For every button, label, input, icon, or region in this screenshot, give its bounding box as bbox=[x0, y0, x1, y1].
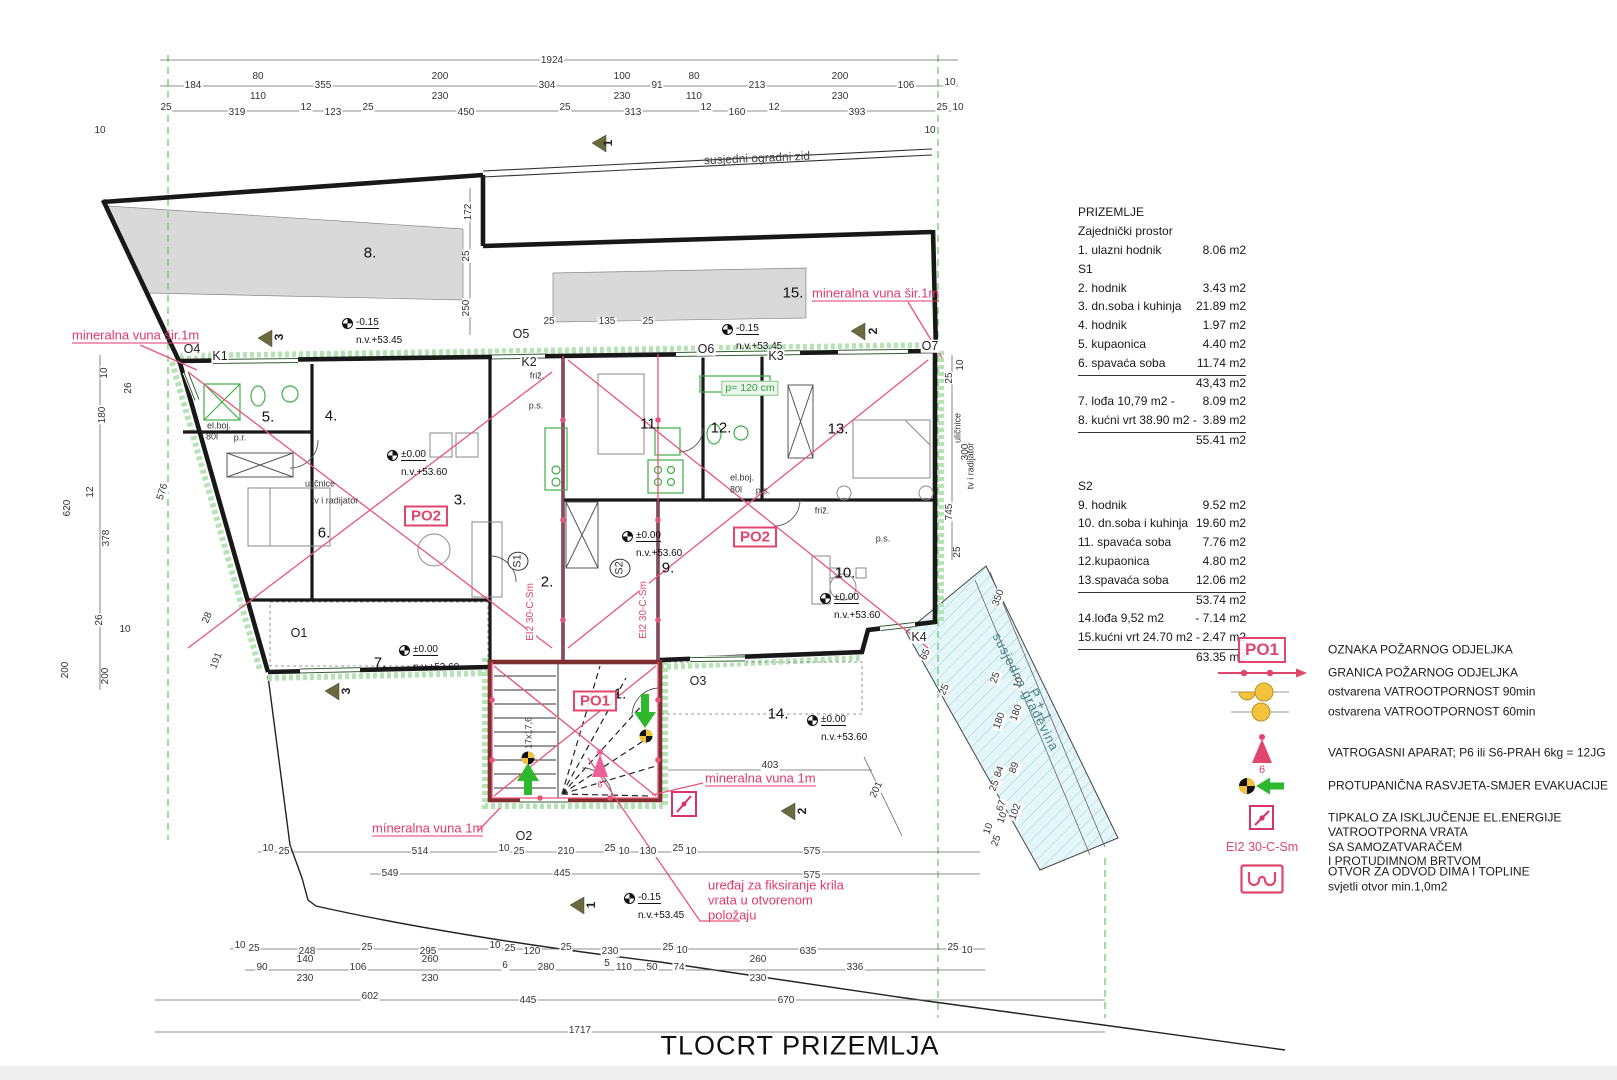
legend-label: ostvarena VATROOTPORNOST 90min bbox=[1328, 685, 1535, 700]
dimension-label: 12 bbox=[767, 103, 780, 113]
legend-label: PROTUPANIČNA RASVJETA-SMJER EVAKUACIJE bbox=[1328, 779, 1608, 794]
legend-symbol bbox=[1231, 681, 1293, 703]
dimension-label: 230 bbox=[601, 947, 620, 957]
level-marker-icon bbox=[820, 593, 831, 604]
fire-compartment-badge: PO1 bbox=[573, 691, 617, 712]
dimension-label: 450 bbox=[457, 108, 476, 118]
room-number: 5. bbox=[262, 410, 275, 425]
room-number: 4. bbox=[325, 409, 338, 424]
dimension-label: 25 bbox=[935, 103, 948, 113]
level-marker: -0.15n.v.+53.45 bbox=[722, 318, 782, 354]
po1-symbol: PO1 bbox=[1238, 637, 1286, 663]
area-row-label: 7. lođa 10,79 m2 - bbox=[1078, 394, 1175, 408]
site-terrain-line bbox=[268, 676, 1285, 1050]
dimension-label: 106 bbox=[349, 963, 368, 973]
dimension-label: 26 bbox=[95, 613, 105, 626]
dimension-label: 635 bbox=[799, 947, 818, 957]
power-cutoff-switch-symbol bbox=[672, 792, 696, 816]
dimension-label: 10 bbox=[951, 103, 964, 113]
dimension-label: 25 bbox=[159, 103, 172, 113]
room-number: 8. bbox=[364, 246, 377, 261]
dimension-label: 575 bbox=[803, 847, 822, 857]
dimension-label: 26 bbox=[124, 381, 134, 394]
dimension-label: 160 bbox=[728, 108, 747, 118]
dimension-label: 110 bbox=[249, 92, 267, 102]
legend-symbol: EI2 30-C-Sm bbox=[1226, 840, 1298, 854]
fixture-label: 80l bbox=[730, 486, 742, 495]
legend-label: GRANICA POŽARNOG ODJELJKA bbox=[1328, 666, 1518, 681]
level-marker-icon bbox=[624, 893, 635, 904]
level-marker-icon bbox=[399, 645, 410, 656]
floor-plan-sheet: 1924184801103552002303041002309180110213… bbox=[0, 0, 1617, 1080]
legend-symbol bbox=[1231, 701, 1293, 723]
area-row-label: 10. dn.soba i kuhinja bbox=[1078, 516, 1188, 530]
level-datum: n.v.+53.45 bbox=[736, 341, 782, 352]
opening-label: K1 bbox=[211, 350, 228, 363]
level-datum: n.v.+53.60 bbox=[636, 548, 682, 559]
section-mark-number: 2 bbox=[867, 328, 879, 335]
dimension-label: 80 bbox=[687, 72, 700, 82]
section-mark-number: 1 bbox=[602, 140, 614, 147]
fire-resistance-60-icon bbox=[1231, 701, 1293, 723]
room-number: 3. bbox=[454, 493, 467, 508]
level-marker: -0.15n.v.+53.45 bbox=[342, 312, 402, 348]
dimension-label: 12 bbox=[699, 103, 712, 113]
fire-resistance-90-icon bbox=[1231, 681, 1293, 703]
dimension-label: 106 bbox=[897, 81, 916, 91]
dimension-label: 184 bbox=[184, 81, 203, 91]
opening-label: K4 bbox=[910, 631, 927, 644]
legend-symbol: 6 bbox=[1247, 732, 1277, 774]
dimension-label: 10 bbox=[93, 126, 106, 136]
fire-note: uređaj za fiksiranje krila bbox=[708, 879, 844, 892]
evacuation-direction-icon bbox=[1234, 775, 1290, 797]
level-marker-icon bbox=[622, 531, 633, 542]
page-title: TLOCRT PRIZEMLJA bbox=[660, 1031, 939, 1062]
dimension-label: 445 bbox=[553, 869, 572, 879]
section-mark-number: 2 bbox=[796, 808, 808, 815]
dimension-label: 120 bbox=[523, 947, 542, 957]
opening-label: O5 bbox=[512, 328, 531, 341]
garden-gray-areas bbox=[108, 206, 806, 322]
legend-symbol bbox=[1248, 804, 1276, 832]
dimension-label: 110 bbox=[615, 963, 633, 973]
section-mark-number: 1 bbox=[585, 902, 597, 909]
area-row-label: 15.kućni vrt 24.70 m2 - bbox=[1078, 630, 1200, 644]
area-row-label: 4. hodnik bbox=[1078, 318, 1127, 332]
dimension-label: 393 bbox=[848, 108, 867, 118]
fire-note: mineralna vuna šir.1m bbox=[812, 287, 939, 302]
level-marker: ±0.00n.v.+53.60 bbox=[622, 525, 682, 561]
dimension-label: 378 bbox=[102, 529, 112, 548]
room-number: 7. bbox=[374, 656, 387, 671]
fixture-label: tv i radijator bbox=[967, 443, 976, 490]
apartment-tag: S2 bbox=[610, 558, 631, 577]
dimension-label: 180 bbox=[98, 406, 108, 425]
level-datum: n.v.+53.60 bbox=[413, 662, 459, 673]
level-value: -0.15 bbox=[736, 323, 759, 335]
dimension-label: 172 bbox=[464, 203, 474, 222]
bottom-strip bbox=[0, 1066, 1617, 1080]
boundary-symbol-icon bbox=[1216, 666, 1308, 680]
opening-label: O6 bbox=[697, 343, 716, 356]
fixture-label: friž. bbox=[530, 372, 545, 381]
dimension-label: 213 bbox=[748, 81, 767, 91]
dimension-label: 230 bbox=[296, 974, 315, 984]
area-row-label: 12.kupaonica bbox=[1078, 554, 1149, 568]
dimension-label: 304 bbox=[538, 81, 557, 91]
fire-note: míneralna vuna 1m bbox=[372, 822, 483, 837]
dimension-label: 10 bbox=[923, 126, 936, 136]
dimension-label: 10 bbox=[684, 847, 697, 857]
level-value: ±0.00 bbox=[401, 449, 426, 461]
dimension-label: 10 bbox=[675, 946, 688, 956]
dimension-label: 355 bbox=[314, 81, 333, 91]
level-marker-icon bbox=[722, 324, 733, 335]
dimension-label: 670 bbox=[777, 996, 796, 1006]
fire-note: vrata u otvorenom bbox=[708, 894, 813, 907]
dimension-label: 25 bbox=[512, 847, 525, 857]
room-number: 15. bbox=[783, 286, 804, 301]
area-row-label: 11. spavaća soba bbox=[1078, 535, 1171, 549]
area-row-label: 13.spavaća soba bbox=[1078, 573, 1169, 587]
fire-compartment-badge: PO2 bbox=[404, 506, 448, 527]
area-row-label: 14.lođa 9,52 m2 bbox=[1078, 611, 1164, 625]
legend-symbol: PO1 bbox=[1238, 637, 1286, 663]
legend: PO1OZNAKA POŽARNOG ODJELJKAGRANICA POŽAR… bbox=[1200, 0, 1615, 1080]
dimension-label: 25 bbox=[277, 847, 290, 857]
room-number: 12. bbox=[711, 421, 732, 436]
dimension-label: 1924 bbox=[540, 56, 564, 66]
dimension-label: 10 bbox=[497, 844, 510, 854]
room-number: 10. bbox=[835, 566, 856, 581]
level-value: -0.15 bbox=[638, 892, 661, 904]
fire-note: mineralna vuna šir.1m bbox=[72, 329, 199, 344]
dimension-label: 1717 bbox=[568, 1026, 592, 1036]
fixture-label: p.s. bbox=[876, 535, 891, 544]
dimension-label: 90 bbox=[255, 963, 268, 973]
level-marker-icon bbox=[387, 450, 398, 461]
dimension-label: 25 bbox=[503, 944, 516, 954]
level-datum: n.v.+53.60 bbox=[834, 610, 880, 621]
opening-label: K2 bbox=[520, 356, 537, 369]
dimension-label: 445 bbox=[519, 996, 538, 1006]
room-number: 6. bbox=[318, 526, 331, 541]
room-number: 2. bbox=[541, 575, 554, 590]
dimension-label: 91 bbox=[650, 81, 663, 91]
dimension-label: 280 bbox=[537, 963, 556, 973]
fire-note: položaju bbox=[708, 909, 756, 922]
fixture-label: 80l bbox=[206, 433, 218, 442]
dimension-label: 10 bbox=[956, 358, 966, 371]
fixture-label: el.boj. bbox=[207, 422, 231, 431]
area-row-label: 2. hodnik bbox=[1078, 281, 1127, 295]
smoke-vent-icon bbox=[1240, 864, 1284, 894]
level-marker: ±0.00n.v.+53.60 bbox=[399, 639, 459, 675]
dimension-label: 549 bbox=[381, 869, 400, 879]
fire-compartment-badge: PO2 bbox=[733, 527, 777, 548]
dimension-label: 10 bbox=[233, 941, 246, 951]
dimension-label: 25 bbox=[542, 317, 555, 327]
dimension-label: 620 bbox=[63, 499, 73, 518]
dimension-label: 10 bbox=[943, 78, 956, 88]
dimension-label: 123 bbox=[324, 108, 343, 118]
legend-symbol bbox=[1234, 775, 1290, 797]
dimension-label: 25 bbox=[603, 844, 616, 854]
legend-label: OTVOR ZA ODVOD DIMA I TOPLINEsvjetli otv… bbox=[1328, 864, 1530, 893]
dimension-label: 100 bbox=[613, 72, 632, 82]
dimension-label: 25 bbox=[945, 371, 955, 384]
dimension-label: 25 bbox=[946, 943, 959, 953]
dimension-label: 260 bbox=[421, 955, 440, 965]
dimension-label: 12 bbox=[86, 485, 96, 498]
dimension-label: 80 bbox=[251, 72, 264, 82]
parapet-label: p= 120 cm bbox=[721, 381, 778, 396]
area-row-label: S1 bbox=[1078, 262, 1093, 276]
dimension-label: 200 bbox=[101, 667, 111, 686]
area-row-label: 3. dn.soba i kuhinja bbox=[1078, 299, 1181, 313]
dimension-label: 10 bbox=[100, 366, 110, 379]
fixture-label: uličnice bbox=[954, 413, 963, 443]
level-datum: n.v.+53.60 bbox=[401, 467, 447, 478]
fire-door-label: EI2 30-C-Sm bbox=[639, 581, 649, 639]
extinguisher-count: 6 bbox=[597, 781, 602, 790]
opening-label: O7 bbox=[921, 340, 940, 353]
level-marker: ±0.00n.v.+53.60 bbox=[820, 587, 880, 623]
dimension-label: 313 bbox=[624, 108, 643, 118]
area-row-label: 5. kupaonica bbox=[1078, 337, 1146, 351]
legend-label: VATROOTPORNA VRATASA SAMOZATVARAČEMI PRO… bbox=[1328, 825, 1481, 869]
level-marker-icon bbox=[342, 318, 353, 329]
legend-label: ostvarena VATROOTPORNOST 60min bbox=[1328, 705, 1535, 720]
dimension-label: 514 bbox=[411, 847, 430, 857]
loggia-outlines bbox=[270, 602, 862, 714]
level-marker: ±0.00n.v.+53.60 bbox=[807, 709, 867, 745]
section-mark-number: 3 bbox=[273, 334, 285, 341]
level-marker: -0.15n.v.+53.45 bbox=[624, 887, 684, 923]
svg-text:6: 6 bbox=[1259, 764, 1265, 774]
dimension-label: 230 bbox=[749, 974, 768, 984]
area-row-label: 9. hodnik bbox=[1078, 498, 1127, 512]
legend-symbol bbox=[1240, 864, 1284, 894]
dimension-label: 130 bbox=[639, 847, 658, 857]
opening-label: O3 bbox=[689, 675, 708, 688]
fixture-label: p.r. bbox=[234, 434, 247, 443]
fixture-label: p.s. bbox=[756, 487, 771, 496]
level-value: ±0.00 bbox=[821, 714, 846, 726]
dimension-label: 5 bbox=[603, 959, 611, 969]
fire-door-label: EI2 30-C-Sm bbox=[526, 583, 536, 641]
opening-label: O4 bbox=[183, 343, 202, 356]
fixture-label: el.boj. bbox=[730, 474, 754, 483]
dimension-label: 25 bbox=[462, 249, 472, 262]
dimension-label: 110 bbox=[685, 92, 703, 102]
opening-label: O2 bbox=[515, 830, 534, 843]
dimension-label: 230 bbox=[431, 92, 450, 102]
dimension-label: 200 bbox=[831, 72, 850, 82]
dimension-label: 25 bbox=[953, 545, 963, 558]
legend-label: VATROGASNI APARAT; P6 ili S6-PRAH 6kg = … bbox=[1328, 746, 1606, 761]
room-number: 14. bbox=[768, 707, 789, 722]
fixture-label: tv i radijator bbox=[312, 497, 359, 506]
dimension-label: 250 bbox=[462, 299, 472, 318]
fire-note: mineralna vuna 1m bbox=[705, 772, 816, 787]
fixture-label: uličnice bbox=[305, 480, 335, 489]
dimension-label: 74 bbox=[672, 963, 685, 973]
area-row-label: S2 bbox=[1078, 479, 1093, 493]
section-mark-number: 3 bbox=[340, 688, 352, 695]
dimension-label: 336 bbox=[846, 963, 865, 973]
legend-symbol bbox=[1216, 666, 1308, 680]
dimension-label: 50 bbox=[645, 963, 658, 973]
dimension-label: 403 bbox=[761, 761, 780, 771]
dimension-label: 210 bbox=[557, 847, 576, 857]
opening-label: O1 bbox=[290, 627, 309, 640]
dimension-label: 745 bbox=[945, 503, 955, 522]
level-value: -0.15 bbox=[356, 317, 379, 329]
legend-label: TIPKALO ZA ISKLJUČENJE EL.ENERGIJE bbox=[1328, 811, 1561, 826]
dimension-label: 319 bbox=[228, 108, 247, 118]
fixture-label: p.s. bbox=[529, 402, 544, 411]
area-row-label: 6. spavaća soba bbox=[1078, 356, 1165, 370]
room-number: 11. bbox=[640, 417, 660, 432]
level-marker: ±0.00n.v.+53.60 bbox=[387, 444, 447, 480]
dimension-label: 25 bbox=[559, 943, 572, 953]
dimension-label: 25 bbox=[661, 943, 674, 953]
dimension-label: 200 bbox=[61, 661, 71, 680]
dimension-label: 10 bbox=[488, 941, 501, 951]
dimension-label: 25 bbox=[558, 103, 571, 113]
fire-extinguisher-symbol bbox=[592, 749, 608, 777]
level-marker-icon bbox=[807, 715, 818, 726]
dimension-label: 12 bbox=[299, 103, 312, 113]
dimension-label: 230 bbox=[421, 974, 440, 984]
area-row-label: 1. ulazni hodnik bbox=[1078, 243, 1161, 257]
dimension-label: 230 bbox=[613, 92, 632, 102]
dimension-label: 260 bbox=[749, 955, 768, 965]
dimension-label: 25 bbox=[361, 103, 374, 113]
dimension-label: 602 bbox=[361, 992, 380, 1002]
level-value: ±0.00 bbox=[413, 644, 438, 656]
dimension-label: 135 bbox=[598, 317, 617, 327]
dimension-label: 200 bbox=[431, 72, 450, 82]
dimension-label: 10 bbox=[617, 847, 630, 857]
level-datum: n.v.+53.60 bbox=[821, 732, 867, 743]
room-number: 13. bbox=[828, 422, 849, 437]
fire-extinguisher-icon: 6 bbox=[1247, 732, 1277, 774]
fixture-label: friž. bbox=[815, 507, 830, 516]
room-number: 9. bbox=[662, 561, 675, 576]
fire-boundary-dots bbox=[489, 417, 661, 801]
apartment-tag: S1 bbox=[508, 551, 529, 570]
dimension-label: 10 bbox=[960, 946, 973, 956]
dimension-label: 10 bbox=[261, 844, 274, 854]
level-datum: n.v.+53.45 bbox=[356, 335, 402, 346]
dimension-label: 25 bbox=[360, 943, 373, 953]
dimension-label: 25 bbox=[641, 317, 654, 327]
dimension-label: 25 bbox=[671, 844, 684, 854]
dimension-label: 6 bbox=[501, 961, 509, 971]
level-value: ±0.00 bbox=[636, 530, 661, 542]
power-cutoff-icon bbox=[1248, 804, 1276, 832]
level-datum: n.v.+53.45 bbox=[638, 910, 684, 921]
fixture-label: 17x17,6 bbox=[525, 717, 534, 749]
dimension-label: 230 bbox=[831, 92, 850, 102]
level-value: ±0.00 bbox=[834, 592, 859, 604]
area-row-label: 8. kućni vrt 38.90 m2 - bbox=[1078, 413, 1197, 427]
dimension-label: 25 bbox=[247, 944, 260, 954]
legend-label: OZNAKA POŽARNOG ODJELJKA bbox=[1328, 643, 1513, 658]
dimension-label: 140 bbox=[296, 955, 315, 965]
dimension-label: 10 bbox=[118, 625, 131, 635]
fire-door-class-label: EI2 30-C-Sm bbox=[1226, 840, 1298, 854]
